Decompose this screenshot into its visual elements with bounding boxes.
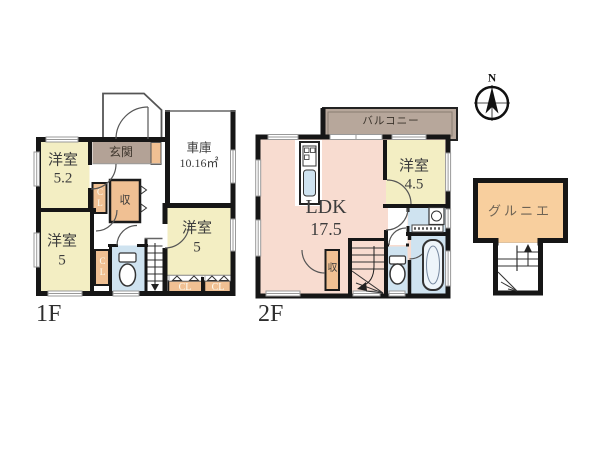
toilet-icon-1f [119,253,136,286]
bathtub-icon [423,240,443,290]
ldk-size: 17.5 [310,220,342,238]
floor1-label: 1F [36,302,61,326]
compass-north-label: N [488,73,496,85]
attic-label: グルニエ [488,205,552,218]
compass-icon [474,85,510,121]
closet-cl-2-label: CL [98,256,107,278]
toilet-icon-2f [390,256,406,284]
room-4-5-name: 洋室 [399,160,429,175]
room-5-2-size: 5.2 [54,172,73,187]
entrance-label: 玄関 [109,146,133,158]
room-5-bl-size: 5 [58,254,66,269]
closet-cl-b-label: CL [212,283,225,293]
storage-2f-label: 収 [328,264,338,274]
balcony-label: バルコニー [362,117,419,128]
storage-1f-label: 収 [120,196,131,207]
washbasin-icon [429,208,444,225]
garage-area: 10.16㎡ [179,157,218,169]
closet-cl-1-label: CL [95,187,104,209]
shoe-cabinet [151,143,161,165]
floor2-label: 2F [258,302,283,326]
room-5-bl-name: 洋室 [47,235,77,250]
attic-stairwell [496,243,541,293]
room-5-br-name: 洋室 [182,222,212,237]
attic-plan [476,181,566,294]
room-5-2-name: 洋室 [48,154,78,169]
closet-cl-a-label: CL [179,283,192,293]
floor2-plan [256,108,457,296]
washer-space [412,225,443,232]
floorplan-linework [0,0,600,457]
garage-name: 車庫 [186,142,211,155]
room-4-5-size: 4.5 [405,178,424,193]
floorplan-page: 洋室 5.2 洋室 5 洋室 5 玄関 車庫 10.16㎡ CL 収 CL CL… [0,0,600,457]
kitchen-sink-icon [304,170,316,196]
room-5-br-size: 5 [193,241,201,256]
porch [103,94,162,141]
ldk-name: LDK [305,197,346,217]
